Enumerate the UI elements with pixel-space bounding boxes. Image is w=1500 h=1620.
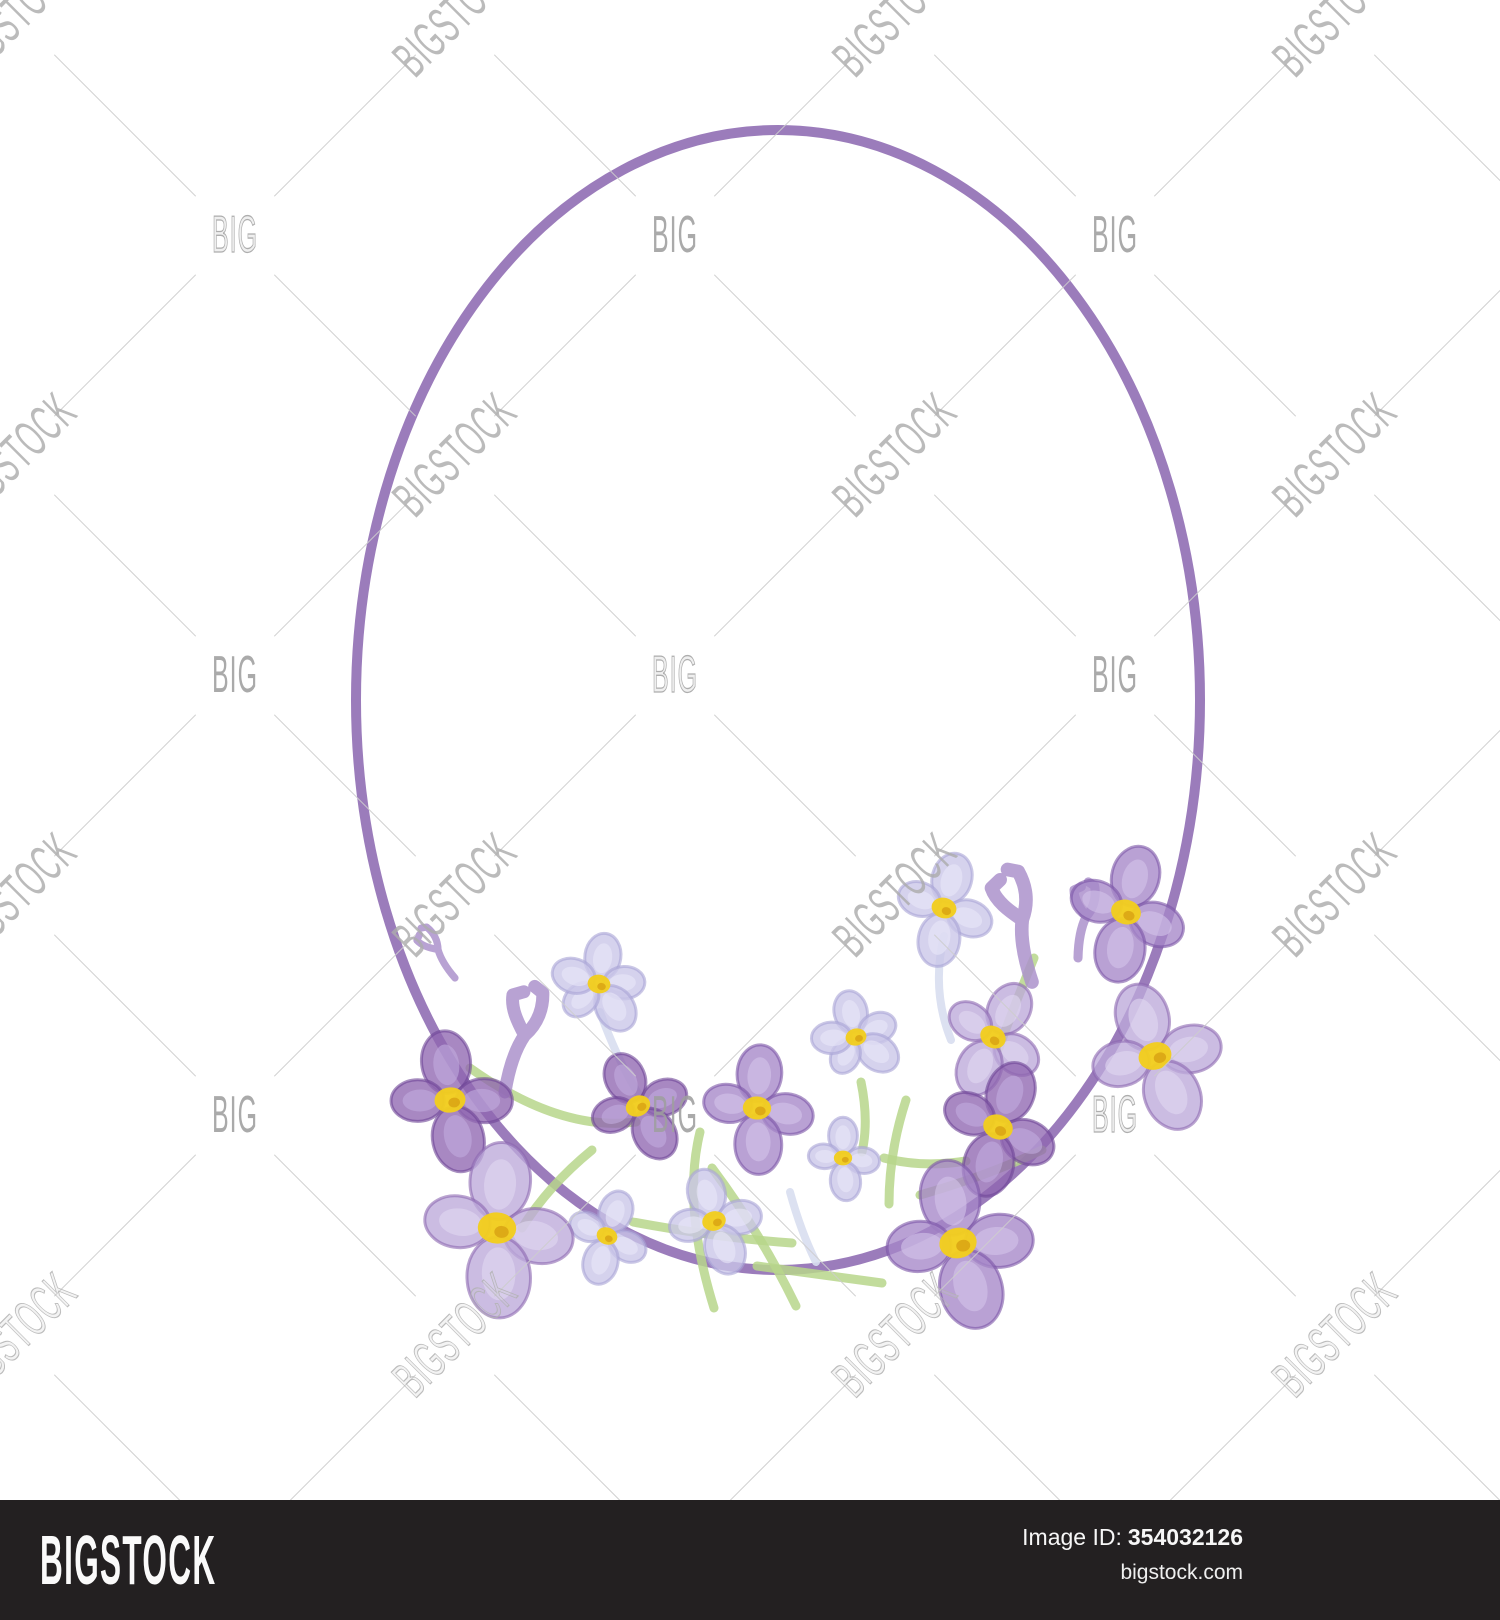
petal bbox=[734, 1114, 783, 1175]
stem-green bbox=[889, 1100, 906, 1204]
image-id-value: 354032126 bbox=[1128, 1524, 1243, 1550]
lilac-branch bbox=[990, 868, 1035, 985]
flower-small-top-right bbox=[881, 841, 1009, 980]
flower-mid-bottom-right bbox=[872, 1147, 1051, 1345]
flower-dark-center-left bbox=[570, 1033, 711, 1182]
petal bbox=[466, 1236, 532, 1319]
stem-blue bbox=[790, 1192, 816, 1262]
flower-small-mid-low bbox=[807, 1117, 881, 1202]
lilac-branch bbox=[413, 924, 457, 985]
watercolor-artwork: BIGSTOCKBIGSTOCKBIGSTOCKBIGSTOCKBIGBIGBI… bbox=[0, 0, 1500, 1500]
flower-small-mid bbox=[801, 982, 911, 1094]
image-id-label: Image ID: bbox=[1022, 1524, 1122, 1550]
flower-mid-center bbox=[697, 1041, 820, 1180]
image-meta: Image ID:354032126 bigstock.com bbox=[1022, 1524, 1243, 1585]
flower-pale-far-right bbox=[1070, 964, 1246, 1153]
site-url: bigstock.com bbox=[1022, 1561, 1243, 1585]
flower-small-top-left bbox=[542, 926, 656, 1042]
floral-frame-illustration bbox=[0, 0, 1500, 1500]
image-id-line: Image ID:354032126 bbox=[1022, 1524, 1243, 1551]
stock-image-preview: BIGSTOCKBIGSTOCKBIGSTOCKBIGSTOCKBIGBIGBI… bbox=[0, 0, 1500, 1620]
footer-bar: BIGSTOCK Image ID:354032126 bigstock.com bbox=[0, 1500, 1500, 1620]
stem-green bbox=[861, 1082, 865, 1152]
flower-pale-bottom-left bbox=[416, 1137, 583, 1326]
bigstock-logo: BIGSTOCK bbox=[40, 1520, 216, 1600]
